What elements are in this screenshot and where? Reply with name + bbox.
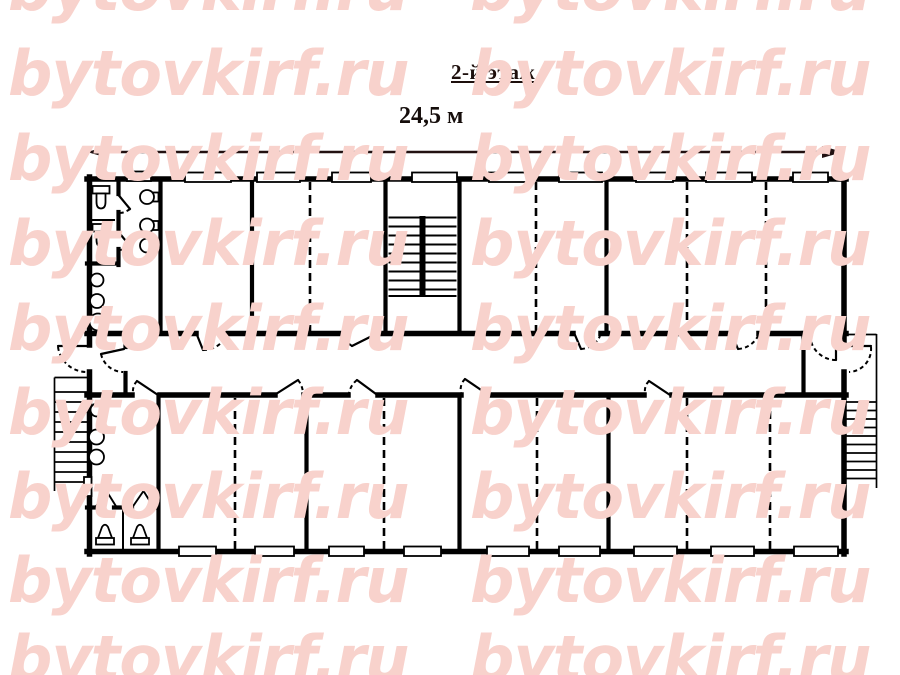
toilet-icon [131, 525, 149, 545]
door-swing [129, 335, 758, 350]
door-swing [810, 336, 871, 372]
toilet-icon [96, 525, 114, 545]
floor-plan-drawing [0, 0, 900, 675]
dimension-arrow [87, 146, 843, 158]
door-swing [58, 346, 124, 372]
toilet-icon [93, 186, 110, 209]
floor-plan-page: 2-й этаж 24,5 м bytovkirf.ru bytovkirf.r… [0, 0, 900, 675]
stairwell [389, 216, 457, 296]
exterior-walls [87, 177, 846, 554]
floor-title: 2-й этаж [451, 60, 535, 85]
sink-icon [140, 190, 159, 253]
interior-walls-bottom-wing [87, 333, 804, 551]
windows-bottom [179, 547, 838, 557]
external-stairs-right [846, 334, 877, 488]
sink-icon [90, 274, 107, 331]
external-stairs-left [55, 378, 88, 492]
interior-walls-top-wing [87, 179, 766, 333]
dimension-label: 24,5 м [399, 103, 463, 130]
toilet-icon [93, 224, 110, 247]
wc-stall-doors-bottom [96, 491, 154, 507]
